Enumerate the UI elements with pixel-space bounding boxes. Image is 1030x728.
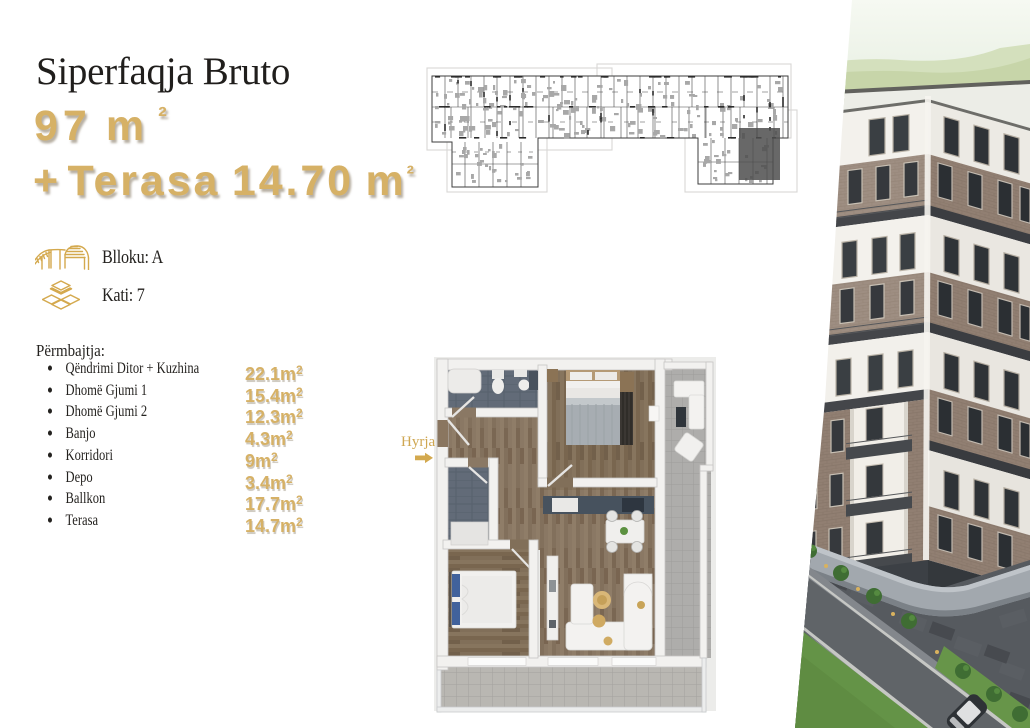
svg-text:Hyrja: Hyrja [401, 434, 435, 450]
